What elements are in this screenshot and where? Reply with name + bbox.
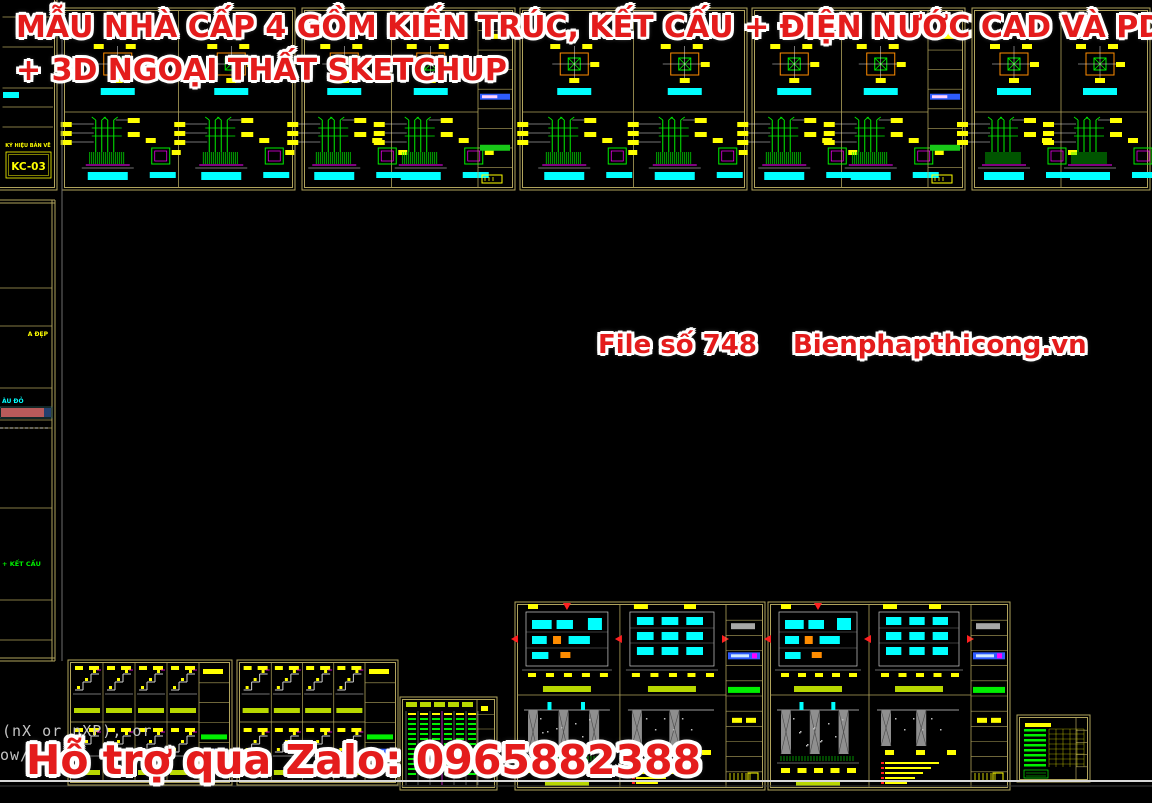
watermark-title-line2: + 3D NGOẠI THẤT SKETCHUP [16,49,1152,92]
website-label: Bienphapthicong.vn [793,330,1087,360]
watermark-zalo: Hỗ trợ qua Zalo: 0965882388 [26,736,701,784]
cad-canvas[interactable]: KÝ HIỆU BẢN VẼKC-03A ĐẸPÀU ĐỎ+ KẾT CẤU (… [0,0,1152,803]
svg-text:+ KẾT CẤU: + KẾT CẤU [2,558,41,568]
watermark-title: MẪU NHÀ CẤP 4 GỒM KIẾN TRÚC, KẾT CẤU + Đ… [16,6,1152,92]
svg-text:ÀU ĐỎ: ÀU ĐỎ [2,397,24,405]
cad-drawing: KÝ HIỆU BẢN VẼKC-03A ĐẸPÀU ĐỎ+ KẾT CẤU [0,0,1152,803]
svg-text:A ĐẸP: A ĐẸP [28,331,49,338]
watermark-title-line1: MẪU NHÀ CẤP 4 GỒM KIẾN TRÚC, KẾT CẤU + Đ… [16,6,1152,49]
watermark-file: File số 748Bienphapthicong.vn [598,330,1087,360]
file-number-label: File số 748 [598,330,757,360]
svg-text:KÝ HIỆU BẢN VẼ: KÝ HIỆU BẢN VẼ [5,141,51,149]
svg-text:KC-03: KC-03 [11,161,46,173]
